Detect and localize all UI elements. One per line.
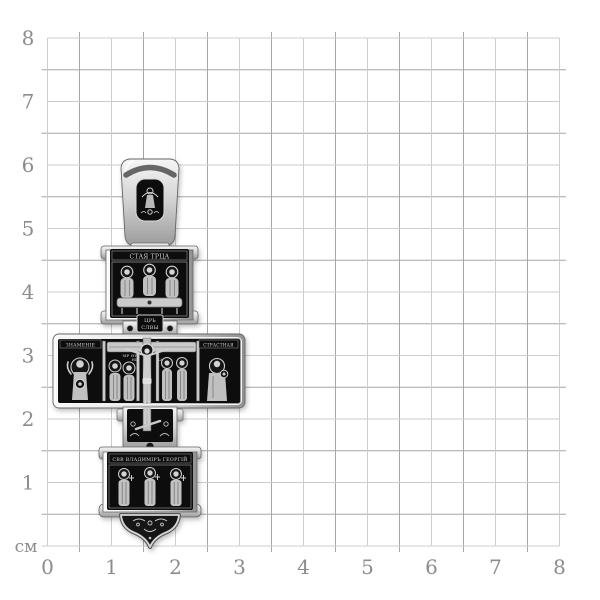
x-axis-label-3: 3 xyxy=(233,555,246,579)
x-axis-label-2: 2 xyxy=(169,555,182,579)
x-axis-label-0: 0 xyxy=(41,555,54,579)
bottom-finial xyxy=(121,515,179,547)
three-saints-icon xyxy=(119,468,187,507)
product-photo: 8 7 6 5 4 3 2 1 см 0 1 2 3 4 5 6 7 8 xyxy=(0,0,600,600)
titulus-line2: СЛВЫ xyxy=(141,325,159,331)
y-axis-label-2: 2 xyxy=(22,407,35,431)
trinity-figures-icon xyxy=(117,264,182,314)
y-axis-label-6: 6 xyxy=(22,153,35,177)
x-axis-label-8: 8 xyxy=(553,555,566,579)
y-axis-label-5: 5 xyxy=(22,217,35,241)
right-inscription: СТРАСТНАЯ xyxy=(203,342,234,347)
bottom-arm-saints-panel: СВВ ВЛАДИМІРЪ ГЕОРГІЙ xyxy=(99,447,201,517)
x-axis-label-4: 4 xyxy=(297,555,310,579)
trinity-inscription: СТАЯ ТРЦА xyxy=(130,254,170,261)
y-axis-label-3: 3 xyxy=(22,344,35,368)
crossbar-crucifixion-panel: ЗНАМЕНІЕ xyxy=(53,334,245,408)
x-axis-label-5: 5 xyxy=(361,555,374,579)
x-axis-label-7: 7 xyxy=(489,555,502,579)
y-axis-label-4: 4 xyxy=(22,280,35,304)
pendant-bail xyxy=(121,159,179,246)
y-axis-label-1: 1 xyxy=(22,471,35,495)
cross-pendant: СТАЯ ТРЦА xyxy=(53,159,245,547)
left-inscription: ЗНАМЕНІЕ xyxy=(66,343,96,349)
lower-neck-panel xyxy=(117,407,183,449)
unit-label-cm: см xyxy=(15,537,38,557)
product-photo-canvas: 8 7 6 5 4 3 2 1 см 0 1 2 3 4 5 6 7 8 xyxy=(0,0,600,600)
axis-labels: 8 7 6 5 4 3 2 1 см 0 1 2 3 4 5 6 7 8 xyxy=(15,26,566,579)
x-axis-label-6: 6 xyxy=(425,555,438,579)
x-axis-label-1: 1 xyxy=(105,555,118,579)
upper-arm-trinity-panel: СТАЯ ТРЦА xyxy=(101,246,198,324)
y-axis-label-8: 8 xyxy=(22,26,35,50)
titulus-line1: ЦРЬ xyxy=(144,318,156,324)
nika-left: НИ xyxy=(131,357,139,362)
y-axis-label-7: 7 xyxy=(22,90,35,114)
